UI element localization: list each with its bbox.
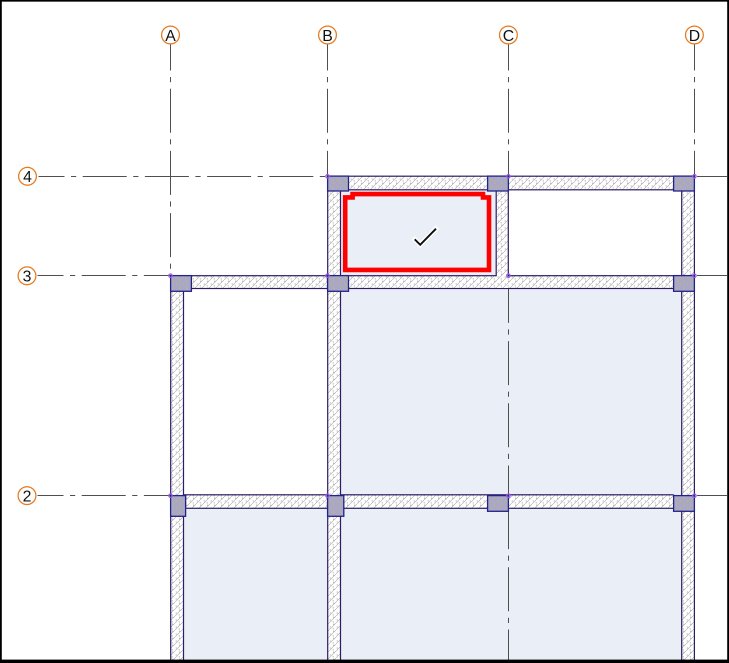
svg-text:C: C (503, 28, 514, 45)
svg-text:D: D (689, 28, 700, 45)
svg-text:B: B (322, 28, 333, 45)
svg-text:A: A (165, 28, 176, 45)
svg-text:3: 3 (23, 269, 32, 286)
svg-text:4: 4 (23, 169, 32, 186)
svg-text:2: 2 (23, 488, 32, 505)
